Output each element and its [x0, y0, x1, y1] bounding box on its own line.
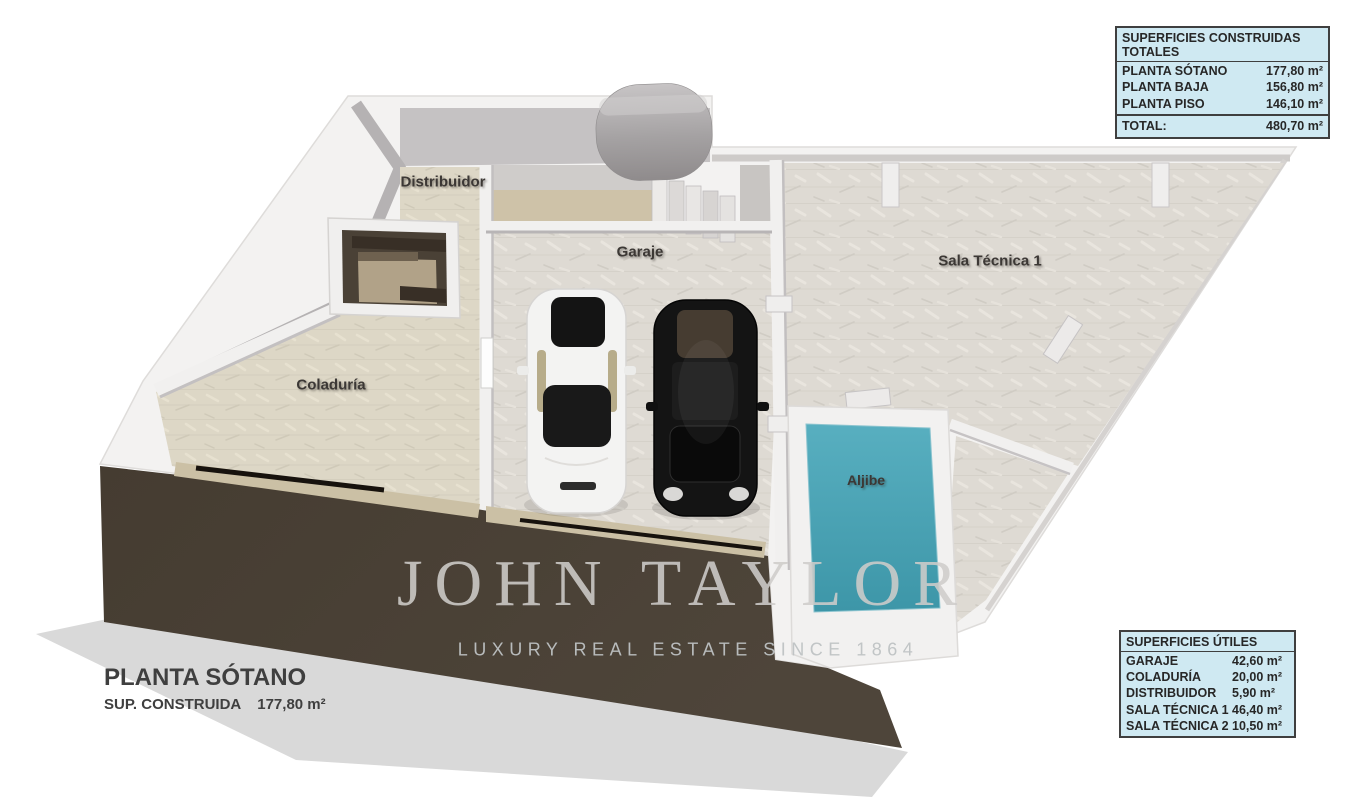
- built-area-line: SUP. CONSTRUIDA 177,80 m²: [104, 696, 326, 713]
- room-label-sala-tecnica-1: Sala Técnica 1: [938, 253, 1041, 270]
- table-header: SUPERFICIES ÚTILES: [1121, 632, 1294, 652]
- row-label: PLANTA SÓTANO: [1122, 63, 1266, 79]
- watermark-tagline: LUXURY REAL ESTATE SINCE 1864: [458, 640, 919, 661]
- total-value: 480,70 m²: [1167, 118, 1323, 134]
- table-row: SALA TÉCNICA 2 10,50 m²: [1121, 718, 1294, 734]
- row-label: SALA TÉCNICA 1: [1126, 702, 1232, 718]
- row-label: PLANTA BAJA: [1122, 79, 1266, 95]
- row-label: PLANTA PISO: [1122, 96, 1266, 112]
- wall-buttress: [882, 163, 899, 207]
- flyer-page: JOHN TAYLOR LUXURY REAL ESTATE SINCE 186…: [0, 0, 1369, 797]
- row-label: DISTRIBUIDOR: [1126, 685, 1232, 701]
- built-area-value: 177,80 m²: [257, 696, 325, 713]
- table-row: COLADURÍA 20,00 m²: [1121, 669, 1294, 685]
- door-leaf: [481, 338, 493, 388]
- wall-buttress: [1152, 163, 1169, 207]
- row-value: 10,50 m²: [1232, 718, 1282, 734]
- room-label-distribuidor: Distribuidor: [401, 174, 486, 191]
- table-header: SUPERFICIES CONSTRUIDAS TOTALES: [1117, 28, 1328, 62]
- row-value: 177,80 m²: [1266, 63, 1323, 79]
- table-superficies-construidas: SUPERFICIES CONSTRUIDAS TOTALES PLANTA S…: [1115, 26, 1330, 139]
- row-label: SALA TÉCNICA 2: [1126, 718, 1232, 734]
- row-value: 5,90 m²: [1232, 685, 1275, 701]
- table-row: SALA TÉCNICA 1 46,40 m²: [1121, 702, 1294, 718]
- room-label-garaje: Garaje: [617, 244, 664, 261]
- garage-top-band-tan: [492, 190, 654, 222]
- table-superficies-utiles: SUPERFICIES ÚTILES GARAJE 42,60 m² COLAD…: [1119, 630, 1296, 738]
- white-car: [517, 289, 636, 517]
- room-label-aljibe: Aljibe: [847, 472, 885, 488]
- row-value: 46,40 m²: [1232, 702, 1282, 718]
- row-value: 20,00 m²: [1232, 669, 1282, 685]
- table-total-row: TOTAL: 480,70 m²: [1117, 114, 1328, 137]
- row-value: 156,80 m²: [1266, 79, 1323, 95]
- row-label: GARAJE: [1126, 653, 1232, 669]
- black-car: [646, 300, 769, 520]
- table-row: DISTRIBUIDOR 5,90 m²: [1121, 685, 1294, 701]
- aljibe-cistern: [788, 406, 958, 668]
- table-row: PLANTA SÓTANO 177,80 m²: [1117, 63, 1328, 79]
- table-row: PLANTA BAJA 156,80 m²: [1117, 79, 1328, 95]
- table-row: GARAJE 42,60 m²: [1121, 653, 1294, 669]
- built-area-label: SUP. CONSTRUIDA: [104, 696, 241, 713]
- garage-top-corner: [740, 165, 772, 222]
- cylinder-tank: [594, 82, 713, 182]
- row-label: COLADURÍA: [1126, 669, 1232, 685]
- page-title: PLANTA SÓTANO: [104, 664, 306, 692]
- watermark-brand: JOHN TAYLOR: [397, 546, 969, 622]
- total-label: TOTAL:: [1122, 118, 1167, 134]
- room-label-coladuria: Coladuría: [296, 377, 365, 394]
- row-value: 146,10 m²: [1266, 96, 1323, 112]
- table-row: PLANTA PISO 146,10 m²: [1117, 96, 1328, 112]
- row-value: 42,60 m²: [1232, 653, 1282, 669]
- stairwell: [328, 218, 460, 318]
